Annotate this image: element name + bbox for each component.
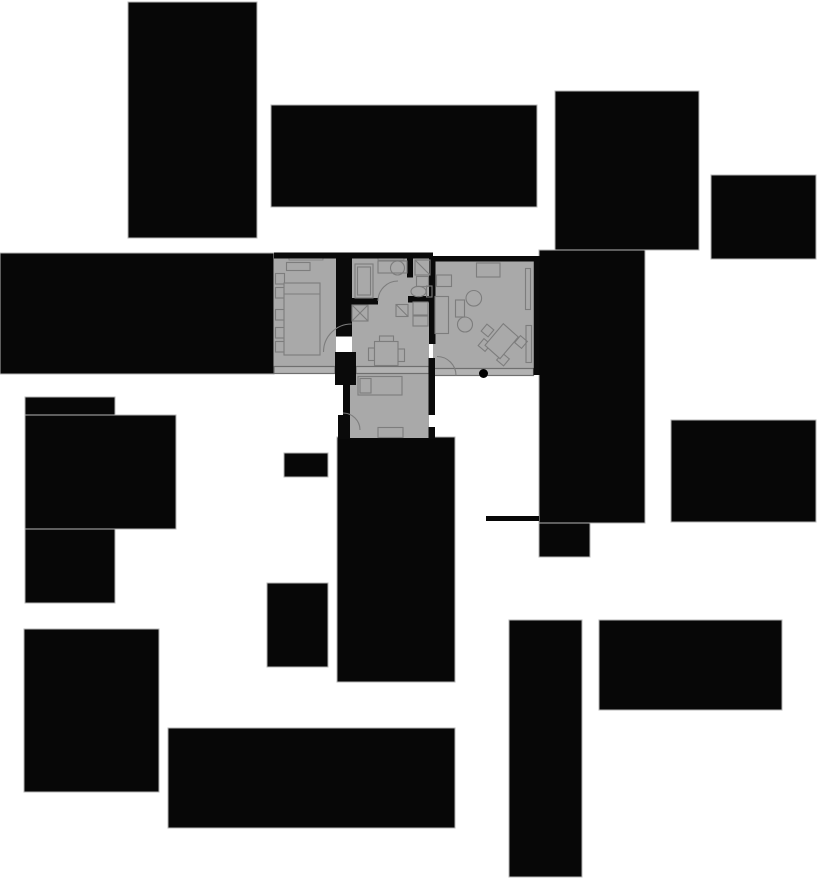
wall-living-east	[534, 256, 540, 375]
building-east-upper	[711, 175, 816, 259]
hall-dining-table	[375, 342, 399, 366]
wall-hall-lower-a	[335, 352, 356, 385]
bedroom2-bed	[358, 377, 402, 396]
wall-bedroom2-east-b	[429, 427, 436, 439]
buildings-layer	[0, 2, 816, 877]
wall-kitchen-south	[352, 298, 378, 305]
window-band-bedroom1	[274, 367, 335, 374]
wall-fragment-east	[486, 516, 539, 521]
window-band-hall	[356, 367, 429, 374]
wall-bedroom2-west	[338, 415, 350, 439]
building-south-wide	[168, 728, 455, 828]
wall-top-living	[429, 256, 540, 262]
building-center-south	[337, 437, 455, 682]
building-east-column-foot	[539, 523, 590, 557]
wall-bedroom2-east-a	[429, 358, 436, 415]
building-west-band	[0, 253, 274, 374]
building-southeast-wide	[599, 620, 782, 710]
building-small-center	[284, 453, 328, 477]
building-southeast-tall	[509, 620, 582, 877]
building-southwest-wide	[25, 415, 176, 529]
site-plan-svg	[0, 0, 818, 879]
entry-dot	[479, 369, 488, 378]
building-top-left	[128, 2, 257, 238]
wall-kitchen-wc-divider	[407, 253, 413, 278]
markers-layer	[479, 369, 488, 378]
building-southeast-upper	[671, 420, 816, 522]
figure-ground-site-plan	[0, 0, 818, 879]
building-top-center	[271, 105, 537, 207]
building-east-column	[539, 250, 645, 523]
building-mid-south	[267, 583, 328, 667]
building-southwest-low	[24, 629, 159, 792]
building-top-right	[555, 91, 699, 250]
wall-hall-lower-b	[343, 385, 350, 415]
